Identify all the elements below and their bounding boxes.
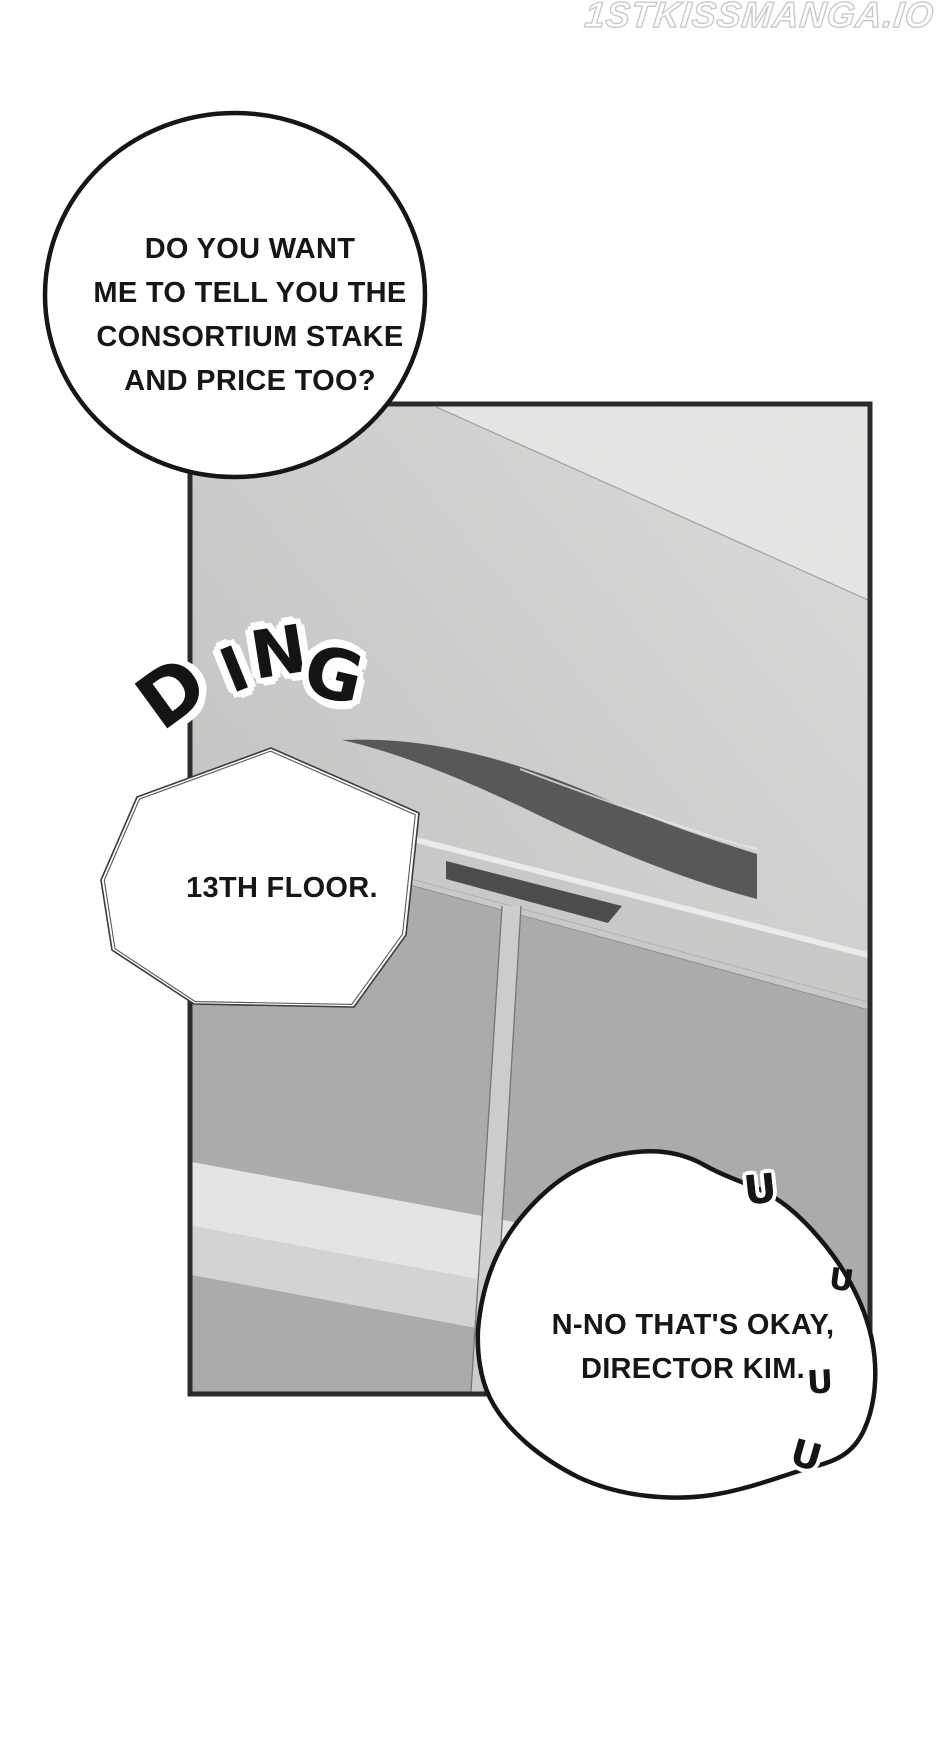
question-bubble-text: DO YOU WANT ME TO TELL YOU THE CONSORTIU… (90, 227, 410, 403)
speech-line: N-NO THAT'S OKAY, (533, 1303, 853, 1347)
speech-line: ME TO TELL YOU THE (90, 271, 410, 315)
speech-line: AND PRICE TOO? (90, 359, 410, 403)
tremble-mark: U (806, 1365, 834, 1398)
reply-bubble-text: N-NO THAT'S OKAY, DIRECTOR KIM. (533, 1303, 853, 1391)
comic-page: 1STKISSMANGA.IO (0, 0, 940, 1760)
speech-line: DIRECTOR KIM. (533, 1347, 853, 1391)
floor-announce-text: 13TH FLOOR. (132, 866, 432, 910)
speech-line: DO YOU WANT (90, 227, 410, 271)
speech-line: 13TH FLOOR. (132, 866, 432, 910)
tremble-mark: U (742, 1168, 778, 1211)
speech-line: CONSORTIUM STAKE (90, 315, 410, 359)
tremble-mark: U (827, 1264, 855, 1297)
